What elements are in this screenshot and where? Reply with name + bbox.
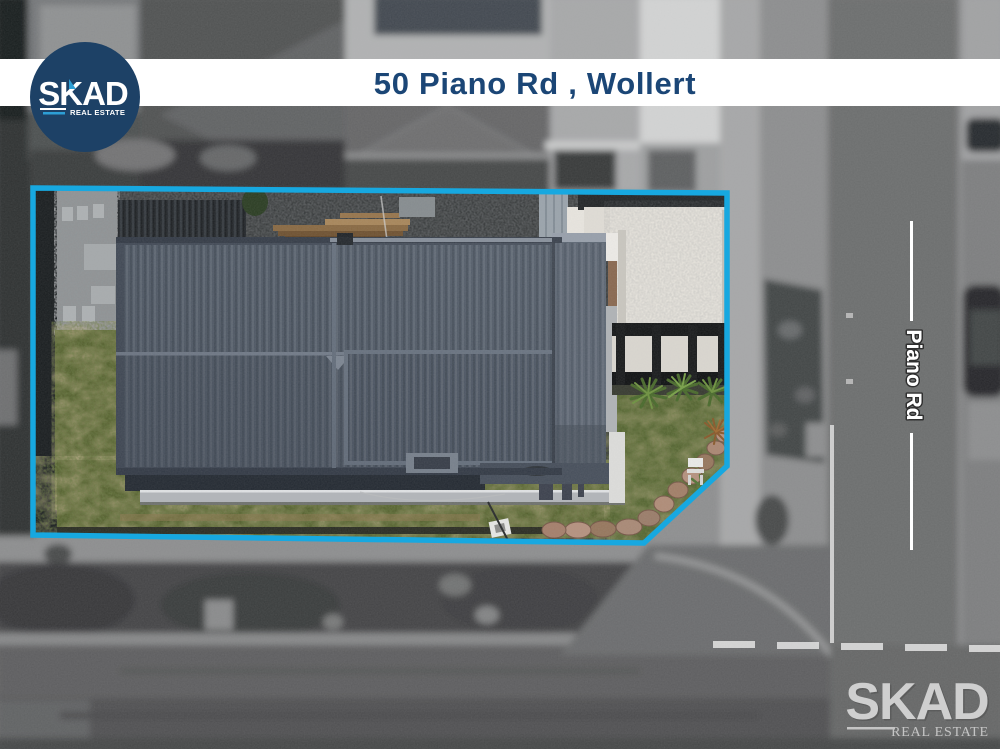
svg-text:REAL ESTATE: REAL ESTATE xyxy=(891,725,989,740)
svg-text:REAL ESTATE: REAL ESTATE xyxy=(70,108,125,117)
svg-text:SKAD: SKAD xyxy=(38,75,128,112)
svg-text:50 Piano Rd , Wollert: 50 Piano Rd , Wollert xyxy=(374,66,696,101)
svg-text:SKAD: SKAD xyxy=(845,673,988,731)
svg-text:Piano Rd: Piano Rd xyxy=(902,329,925,420)
